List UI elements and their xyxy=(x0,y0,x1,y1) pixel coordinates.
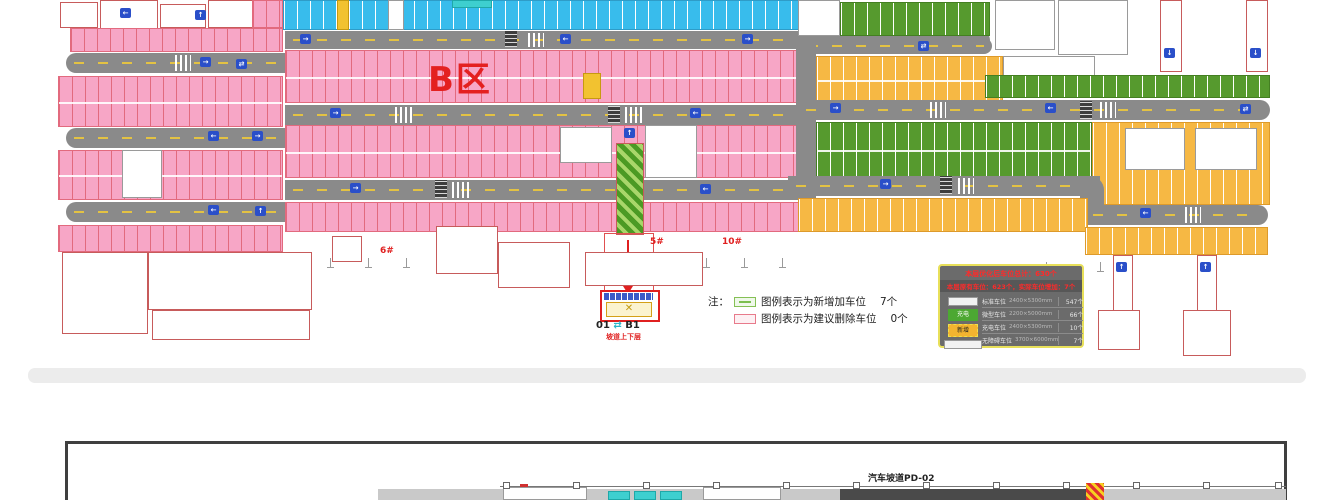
parking-stalls-orange xyxy=(1085,227,1268,255)
room-outline xyxy=(62,252,148,334)
legend-row-count: 66个 xyxy=(1058,310,1083,319)
direction-sign-icon: ↑ xyxy=(1200,262,1211,272)
room-outline xyxy=(498,242,570,288)
room-outline xyxy=(60,2,98,28)
column-marker xyxy=(1133,482,1140,489)
note-removed-count: 0个 xyxy=(891,311,908,326)
crosswalk xyxy=(958,178,974,194)
direction-sign-icon: ↓ xyxy=(1250,48,1261,58)
corridor-stub xyxy=(1246,0,1268,72)
section-separator xyxy=(28,368,1306,383)
legend-row-dims: 2200×5000mm xyxy=(1009,311,1052,317)
column-marker xyxy=(1275,482,1282,489)
legend-row-count: 547个 xyxy=(1058,297,1083,306)
wide-stall-swatch-icon xyxy=(944,340,982,349)
direction-sign-icon: ↑ xyxy=(624,128,635,138)
room-outline xyxy=(1125,128,1185,170)
legend-row-count: 7个 xyxy=(1058,336,1083,345)
ramp-level-label: 01 ⇄ B1 xyxy=(596,320,640,331)
direction-sign-icon: ← xyxy=(1045,103,1056,113)
column-marker xyxy=(643,482,650,489)
room-outline xyxy=(152,310,310,340)
green-stall-swatch-icon: 充电 xyxy=(948,309,978,321)
direction-sign-icon: ↓ xyxy=(1164,48,1175,58)
direction-sign-icon: → xyxy=(200,57,211,67)
equipment-block xyxy=(634,491,656,500)
green-legend-swatch-icon xyxy=(734,297,756,307)
plan-note: 注： 图例表示为新增加车位 7个 图例表示为建议删除车位 0个 xyxy=(708,293,923,327)
direction-sign-icon: ← xyxy=(700,184,711,194)
crosswalk xyxy=(175,55,191,71)
parking-stalls-green xyxy=(985,75,1270,98)
room-outline xyxy=(1195,128,1257,170)
crosswalk xyxy=(452,182,470,198)
parking-stalls-pink xyxy=(58,76,283,127)
parking-stalls-pink xyxy=(285,125,800,178)
legend-rows: 标准车位 2400×5300mm 547个 微型车位 2200×5000mm 6… xyxy=(982,295,1083,349)
pink-legend-swatch-icon xyxy=(734,314,756,324)
parking-stalls-cyan xyxy=(283,0,800,30)
ramp-to: B1 xyxy=(625,320,640,331)
speed-bump xyxy=(505,31,517,47)
lower-grid-line xyxy=(500,486,1286,487)
note-removed-text: 图例表示为建议删除车位 xyxy=(761,311,877,326)
direction-sign-icon: → xyxy=(830,103,841,113)
room-outline xyxy=(995,0,1055,50)
grid-tick xyxy=(330,258,331,268)
legend-row-dims: 2400×5300mm xyxy=(1009,298,1052,304)
note-prefix: 注： xyxy=(708,294,729,309)
building-label: 6# xyxy=(380,246,394,256)
room-outline xyxy=(645,125,697,178)
building-label: 5# xyxy=(650,237,664,247)
room-outline xyxy=(1098,310,1140,350)
driveway xyxy=(800,38,992,54)
equipment-block xyxy=(452,0,492,8)
direction-sign-icon: → xyxy=(742,34,753,44)
note-line-added: 注： 图例表示为新增加车位 7个 xyxy=(708,293,923,310)
driveway xyxy=(798,100,1270,120)
direction-sign-icon: → xyxy=(880,179,891,189)
legend-row-label: 标准车位 xyxy=(982,297,1006,306)
grid-tick xyxy=(706,258,707,268)
crosswalk xyxy=(930,102,946,118)
room-gap xyxy=(388,0,404,30)
speed-bump xyxy=(940,176,952,194)
speed-bump xyxy=(435,180,447,198)
legend-row: 无障碍车位 3700×6000mm 7个 xyxy=(982,334,1083,346)
parking-stalls-pink xyxy=(58,150,283,200)
note-added-text: 图例表示为新增加车位 xyxy=(761,294,866,309)
grid-tick xyxy=(1100,262,1101,272)
legend-body: 充电 新增 标准车位 2400×5300mm 547个 微型车位 2200×50… xyxy=(940,292,1082,351)
grid-tick xyxy=(782,258,783,268)
legend-row-label: 充电车位 xyxy=(982,323,1006,332)
direction-sign-icon: ↑ xyxy=(1116,262,1127,272)
direction-sign-icon: ⇄ xyxy=(236,59,247,69)
parking-stalls-orange xyxy=(816,56,1003,104)
parking-stalls-green xyxy=(816,122,1092,177)
driveway xyxy=(285,105,805,125)
column-marker xyxy=(923,482,930,489)
direction-sign-icon: → xyxy=(252,131,263,141)
parking-stalls-pink xyxy=(285,202,800,232)
legend-row-label: 微型车位 xyxy=(982,310,1006,319)
zone-label: B区 xyxy=(428,52,492,101)
legend-row: 充电车位 2400×5300mm 10个 xyxy=(982,321,1083,334)
column-marker xyxy=(783,482,790,489)
note-added-count: 7个 xyxy=(880,294,897,309)
legend-row: 标准车位 2400×5300mm 547个 xyxy=(982,295,1083,308)
red-grid-mark xyxy=(520,484,528,487)
column-marker xyxy=(337,0,349,30)
direction-sign-icon: ← xyxy=(120,8,131,18)
direction-sign-icon: ↑ xyxy=(195,10,206,20)
direction-sign-icon: ← xyxy=(560,34,571,44)
column-marker xyxy=(503,482,510,489)
corridor-stub xyxy=(1160,0,1182,72)
column-marker xyxy=(993,482,1000,489)
room-outline xyxy=(560,127,612,163)
direction-sign-icon: ← xyxy=(690,108,701,118)
room-outline xyxy=(798,0,840,36)
parking-stalls-pink-b-zone xyxy=(285,50,800,103)
hatch-crossed-box: ✕ xyxy=(606,302,652,317)
direction-sign-icon: ⇄ xyxy=(918,41,929,51)
legend-box: 本层优化后车位总计：630个 本层原有车位：623个，实际车位增加：7个 充电 … xyxy=(938,264,1084,348)
room-outline xyxy=(332,236,362,262)
vehicle-ramp xyxy=(616,143,644,235)
room-outline xyxy=(1058,0,1128,55)
parking-plan-canvas: B区 ✕ 01 ⇄ B1 坡道上下层 6# 10# 5# 10# xyxy=(0,0,1333,500)
legend-row-label: 无障碍车位 xyxy=(982,336,1012,345)
room-outline xyxy=(436,226,498,274)
room-outline xyxy=(1003,56,1095,76)
ramp-caption: 坡道上下层 xyxy=(606,332,641,342)
driveway xyxy=(1085,205,1268,225)
crosswalk xyxy=(1185,207,1201,223)
legend-subtitle: 本层原有车位：623个，实际车位增加：7个 xyxy=(940,280,1082,292)
parking-stalls-orange xyxy=(798,198,1088,232)
crosswalk xyxy=(395,107,413,123)
building-label: 10# xyxy=(722,237,742,247)
legend-title: 本层优化后车位总计：630个 xyxy=(940,266,1082,280)
column-marker xyxy=(853,482,860,489)
grid-tick xyxy=(368,258,369,268)
crosswalk xyxy=(528,33,544,47)
ramp-arrows-icon: ⇄ xyxy=(613,320,621,331)
direction-sign-icon: ← xyxy=(208,205,219,215)
direction-sign-icon: → xyxy=(300,34,311,44)
room-outline xyxy=(1183,310,1231,356)
legend-swatches: 充电 新增 xyxy=(944,295,982,349)
room-outline xyxy=(148,252,312,310)
legend-row: 微型车位 2200×5000mm 66个 xyxy=(982,308,1083,321)
note-line-removed: 图例表示为建议删除车位 0个 xyxy=(708,310,923,327)
crosswalk xyxy=(625,107,643,123)
equipment-block xyxy=(660,491,682,500)
yellow-stall-swatch-icon: 新增 xyxy=(948,324,978,337)
column-marker xyxy=(1203,482,1210,489)
direction-sign-icon: → xyxy=(330,108,341,118)
legend-row-dims: 3700×6000mm xyxy=(1015,337,1058,343)
standard-stall-swatch-icon xyxy=(948,297,978,306)
column-marker xyxy=(573,482,580,489)
equipment-block xyxy=(608,491,630,500)
column-marker xyxy=(713,482,720,489)
driveway xyxy=(285,180,800,200)
parking-stalls-green xyxy=(840,2,990,36)
parking-stalls-pink xyxy=(70,28,283,52)
speed-bump xyxy=(608,106,620,123)
parking-stalls-pink xyxy=(252,0,283,28)
direction-sign-icon: ⇄ xyxy=(1240,104,1251,114)
column-marker xyxy=(583,73,601,99)
direction-sign-icon: ↑ xyxy=(255,206,266,216)
ramp-slab xyxy=(840,489,1100,500)
ramp-from: 01 xyxy=(596,320,610,331)
grid-tick xyxy=(744,258,745,268)
room-outline xyxy=(585,252,703,286)
grid-tick xyxy=(406,258,407,268)
legend-row-dims: 2400×5300mm xyxy=(1009,324,1052,330)
legend-row-count: 10个 xyxy=(1058,323,1083,332)
crosswalk xyxy=(1100,102,1116,118)
direction-sign-icon: ← xyxy=(1140,208,1151,218)
hazard-stripe-icon xyxy=(1086,483,1104,500)
ramp-box-stairs xyxy=(603,293,653,300)
direction-sign-icon: ← xyxy=(208,131,219,141)
parking-stalls-pink xyxy=(58,225,283,252)
speed-bump xyxy=(1080,101,1092,119)
column-marker xyxy=(1063,482,1070,489)
driveway xyxy=(66,128,310,148)
room-outline xyxy=(122,150,162,198)
direction-sign-icon: → xyxy=(350,183,361,193)
